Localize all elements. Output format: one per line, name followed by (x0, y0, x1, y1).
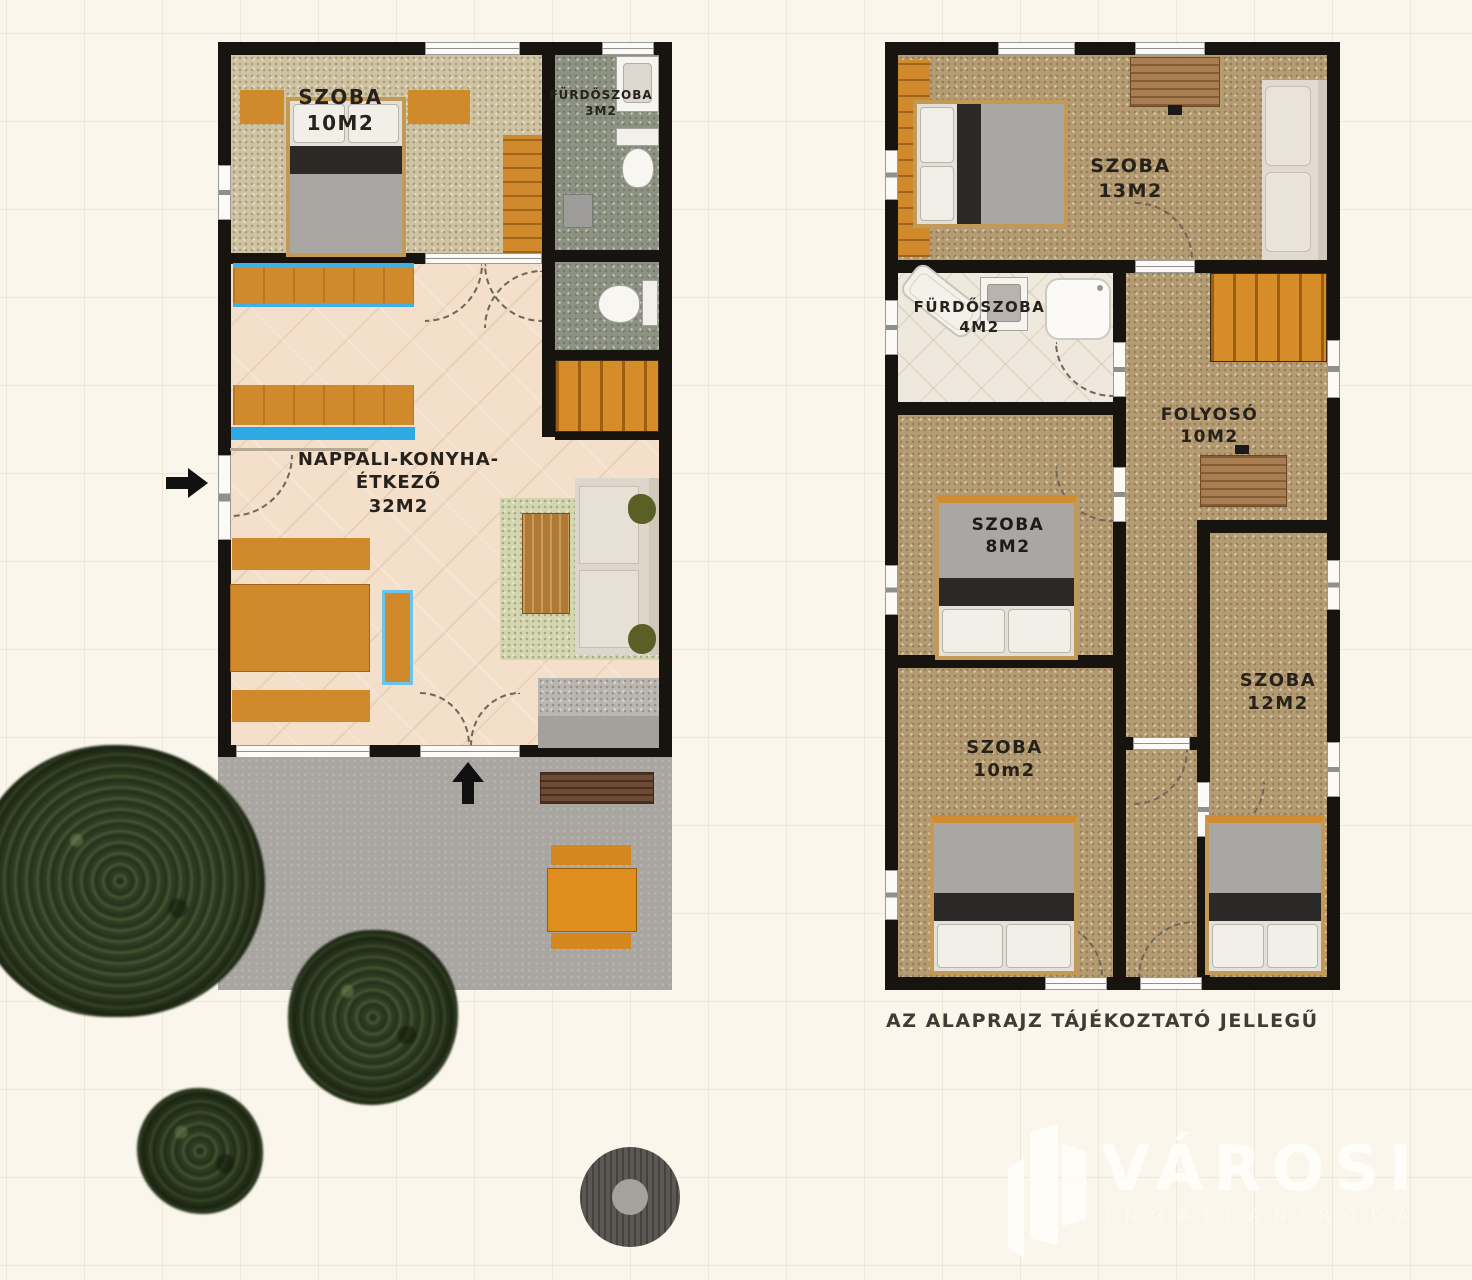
dining-bench (232, 538, 370, 570)
room-name: FÜRDŐSZOBA (545, 88, 657, 104)
wall (1113, 522, 1126, 977)
door-threshold (1133, 737, 1190, 750)
room-area: 10m2 (937, 759, 1072, 782)
watermark-brand: VÁROSI (1102, 1132, 1422, 1205)
wall (1197, 520, 1327, 533)
dining-bench (382, 590, 413, 685)
bed-band (957, 104, 981, 224)
room-area: 32M2 (276, 495, 521, 518)
window (885, 565, 898, 615)
door-threshold (1140, 977, 1202, 990)
patio-bench (551, 845, 631, 865)
room-label-bedroom8: SZOBA 8M2 (943, 514, 1073, 558)
wall (1327, 42, 1340, 990)
plant (628, 494, 656, 524)
garden-bench (540, 772, 654, 804)
toilet (596, 280, 658, 326)
bed-pillows (1209, 921, 1321, 971)
room-label-hallway: FOLYOSÓ 10M2 (1147, 404, 1272, 448)
door-threshold (218, 455, 231, 540)
room-label-bathroom: FÜRDŐSZOBA 3M2 (545, 88, 657, 119)
up-arrow-icon (452, 762, 484, 804)
bed-blanket (1209, 823, 1321, 893)
door-threshold (1135, 260, 1195, 273)
kitchen-counter (233, 263, 414, 307)
tree (137, 1088, 263, 1214)
bed-blanket (290, 174, 402, 253)
toilet (616, 128, 659, 192)
window (998, 42, 1075, 55)
room-area: 4M2 (897, 318, 1062, 338)
room-name: SZOBA (1068, 154, 1193, 179)
stairs (1210, 273, 1327, 362)
floorplan-page: { "floor1": { "bedroom": {"name": "SZOBA… (0, 0, 1472, 1280)
chair (1168, 105, 1182, 115)
patio-bench (551, 933, 631, 949)
upper-floor-plan: SZOBA 13M2 FÜRDŐSZOBA 4M2 FOLYOSÓ 10M2 S… (885, 42, 1340, 990)
room-name: SZOBA (937, 736, 1072, 759)
room-area: 12M2 (1213, 692, 1343, 715)
wall (898, 402, 1126, 415)
door-threshold (1113, 342, 1126, 397)
window (602, 42, 654, 55)
bed-band (1209, 893, 1321, 921)
bed-blanket (981, 104, 1064, 224)
right-arrow-icon (166, 468, 208, 498)
window (885, 150, 898, 200)
wardrobe (503, 135, 542, 253)
plant (628, 624, 656, 654)
room-name: FÜRDŐSZOBA (897, 298, 1062, 318)
dining-table (230, 584, 370, 672)
wall (659, 42, 672, 758)
room-area: 10M2 (248, 110, 433, 136)
bed-band (290, 146, 402, 174)
kitchen-counter (233, 385, 414, 425)
room-name: NAPPALI-KONYHA-ÉTKEZŐ (276, 448, 521, 495)
room-name: SZOBA (943, 514, 1073, 536)
bed (1205, 815, 1325, 975)
window (218, 165, 231, 220)
desk (1200, 455, 1287, 507)
wall (1113, 273, 1126, 342)
room-area: 13M2 (1068, 179, 1193, 204)
bed (930, 815, 1078, 975)
bed-pillows (917, 104, 957, 224)
room-area: 8M2 (943, 536, 1073, 558)
bed (913, 100, 1068, 228)
door-threshold (1045, 977, 1107, 990)
ground-floor-plan: SZOBA 10M2 FÜRDŐSZOBA 3M2 NAPPALI-KONYHA… (218, 42, 672, 758)
room-label-bedroom10: SZOBA 10m2 (937, 736, 1072, 783)
window (1327, 560, 1340, 610)
wall (1195, 260, 1327, 273)
coffee-table (522, 513, 570, 614)
window (1135, 42, 1205, 55)
window (1327, 340, 1340, 398)
bed-band (934, 893, 1074, 921)
dining-bench (232, 690, 370, 722)
bed-band (939, 578, 1074, 606)
well (580, 1147, 680, 1247)
room-area: 3M2 (545, 104, 657, 120)
room-name: SZOBA (1213, 669, 1343, 692)
room-label-bathroom: FÜRDŐSZOBA 4M2 (897, 298, 1062, 337)
wall (885, 977, 1340, 990)
bed-pillows (939, 606, 1074, 656)
desk (1130, 57, 1220, 107)
window (885, 870, 898, 920)
sofa (1262, 80, 1327, 260)
room-label-bedroom12: SZOBA 12M2 (1213, 669, 1343, 716)
room-label-bedroom13: SZOBA 13M2 (1068, 154, 1193, 203)
room-name: SZOBA (248, 84, 433, 110)
stairs (555, 360, 659, 432)
terrace (218, 757, 672, 990)
room-name: FOLYOSÓ (1147, 404, 1272, 426)
bed-pillows (934, 921, 1074, 971)
wall (555, 250, 659, 262)
room-label-living: NAPPALI-KONYHA-ÉTKEZŐ 32M2 (276, 448, 521, 518)
counter-edge (231, 427, 415, 440)
tree (288, 930, 458, 1105)
bed-blanket (934, 823, 1074, 893)
wall (555, 432, 659, 440)
wall (555, 350, 659, 360)
patio-table (547, 868, 637, 932)
door-threshold (1113, 467, 1126, 522)
window (1327, 742, 1340, 797)
room-area: 10M2 (1147, 426, 1272, 448)
watermark: VÁROSI INGATLANIRODA (1000, 1118, 1472, 1258)
door-threshold (425, 253, 542, 264)
window (425, 42, 520, 55)
daybed (538, 678, 659, 748)
disclaimer-note: AZ ALAPRAJZ TÁJÉKOZTATÓ JELLEGŰ (886, 1010, 1346, 1032)
room-label-bedroom: SZOBA 10M2 (248, 84, 433, 136)
shower-tray (563, 194, 593, 228)
wall (885, 42, 1340, 55)
watermark-tagline: INGATLANIRODA (1106, 1206, 1422, 1226)
